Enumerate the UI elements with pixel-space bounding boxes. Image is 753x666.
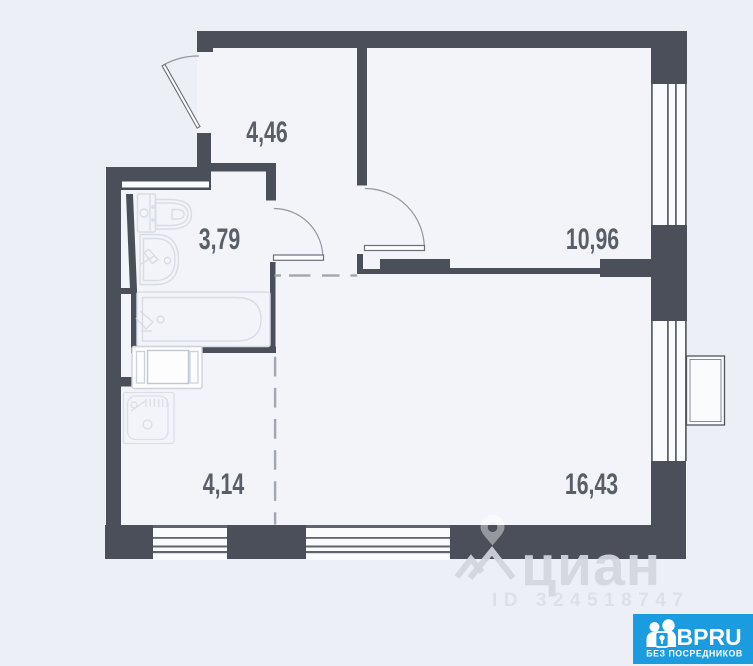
svg-text:ID 324518747: ID 324518747 bbox=[492, 590, 689, 611]
svg-text:10,96: 10,96 bbox=[566, 221, 619, 256]
svg-text:циан: циан bbox=[521, 534, 661, 598]
svg-text:БЕЗ ПОСРЕДНИКОВ: БЕЗ ПОСРЕДНИКОВ bbox=[646, 648, 742, 658]
svg-text:4,46: 4,46 bbox=[246, 114, 287, 149]
svg-text:16,43: 16,43 bbox=[565, 466, 618, 501]
svg-text:3,79: 3,79 bbox=[199, 221, 240, 256]
svg-text:BPRU: BPRU bbox=[677, 624, 742, 650]
svg-text:4,14: 4,14 bbox=[203, 466, 245, 501]
